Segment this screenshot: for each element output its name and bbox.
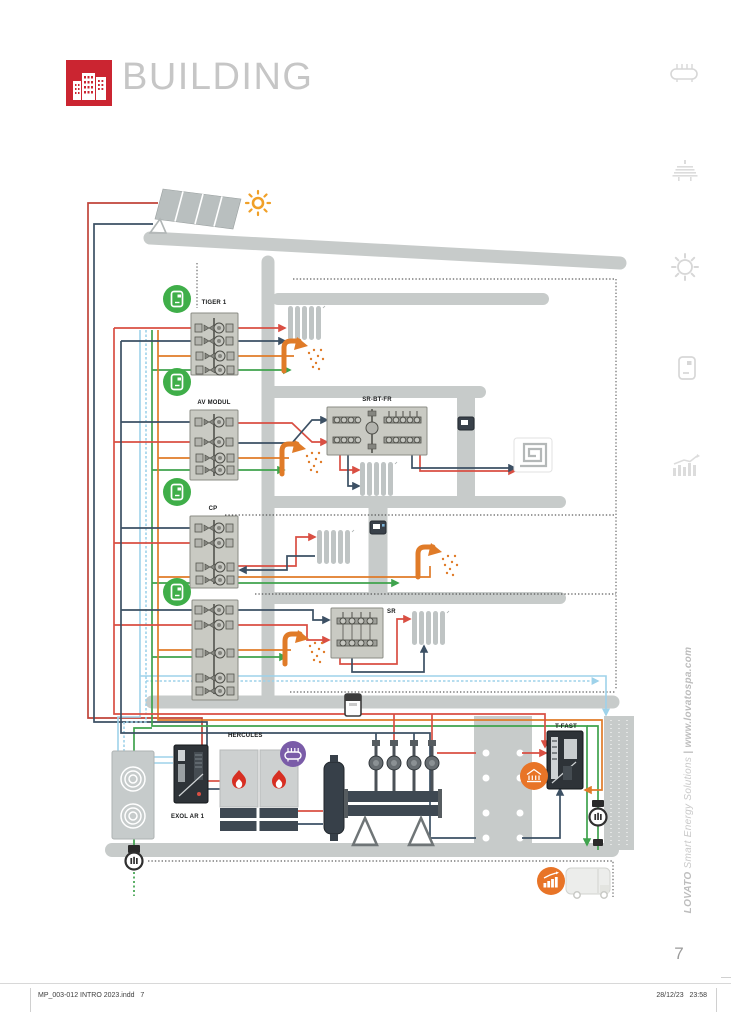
heat-pump-unit [112,751,154,839]
brand-name: LOVATO [683,872,694,914]
label-av-modul: AV MODUL [197,400,230,406]
unit-floor4 [192,600,238,700]
right-service-column [604,716,634,850]
heating-schematic [0,0,731,1012]
catalog-page: BUILDING [0,0,731,1012]
sun-icon [246,191,270,215]
purple-manifold-badge [280,741,306,767]
heat-meter [345,694,361,716]
unit-sr [331,608,383,658]
thermostat [458,417,474,430]
green-controller-icon [163,578,191,606]
crop-mark-left [30,988,31,1012]
pump-station [344,740,442,845]
boiler-headers [220,808,298,831]
brand-url: www.lovatospa.com [683,647,694,751]
unit-sr-bt-fr [327,407,427,455]
delivery-truck-icon [566,868,610,898]
solar-collector-icon [670,158,700,182]
underfloor-heating-icon [514,438,552,472]
manifold-icon [668,60,700,84]
shower-icon [418,543,458,577]
radiator [317,530,354,564]
chart-icon [670,452,700,478]
label-tiger: TIGER 1 [202,300,227,306]
shower-icon [284,337,324,371]
orange-building-badge [520,762,548,790]
brand-separator: | [683,751,694,754]
footer-timestamp: 28/12/23 23:58 [656,992,707,999]
controller-icon [676,354,698,382]
brand-sidebar-text: LOVATO Smart Energy Solutions | www.lova… [683,645,697,915]
solar-pipes [88,203,207,745]
label-sr-bt-fr: SR-BT-FR [362,397,392,403]
unit-tiger [191,313,238,375]
sun-icon [668,250,702,284]
unit-av-modul [190,410,238,480]
crop-mark-right [716,988,717,1012]
hydraulic-separator [324,755,344,841]
roof-beam [150,238,620,263]
green-controller-icon [163,368,191,396]
gas-meter-icon [126,845,143,870]
solar-panel [150,189,241,233]
orange-chart-badge [537,867,565,895]
energy-meter-icon [590,800,607,846]
radiator [360,462,397,496]
radiator [288,306,325,340]
exol-controller-unit [174,745,208,803]
label-exol: EXOL AR 1 [171,814,204,820]
unit-cp [190,516,238,588]
shower-icon [282,440,322,474]
green-controller-icon [163,285,191,313]
footer-rule [0,983,731,984]
t-fast-unit [547,731,583,789]
brand-tagline: Smart Energy Solutions [683,754,694,872]
crop-mark-corner [721,977,731,978]
thermostat [370,521,386,534]
green-controller-icon [163,478,191,506]
footer-filename: MP_003-012 INTRO 2023.indd 7 [38,992,144,999]
label-t-fast: T-FAST [555,724,577,730]
page-number: 7 [664,944,694,964]
radiator [412,611,449,645]
shower-icon [285,630,325,664]
label-sr: SR [387,609,396,615]
label-cp: CP [209,506,218,512]
label-hercules: HERCULES [228,733,263,739]
